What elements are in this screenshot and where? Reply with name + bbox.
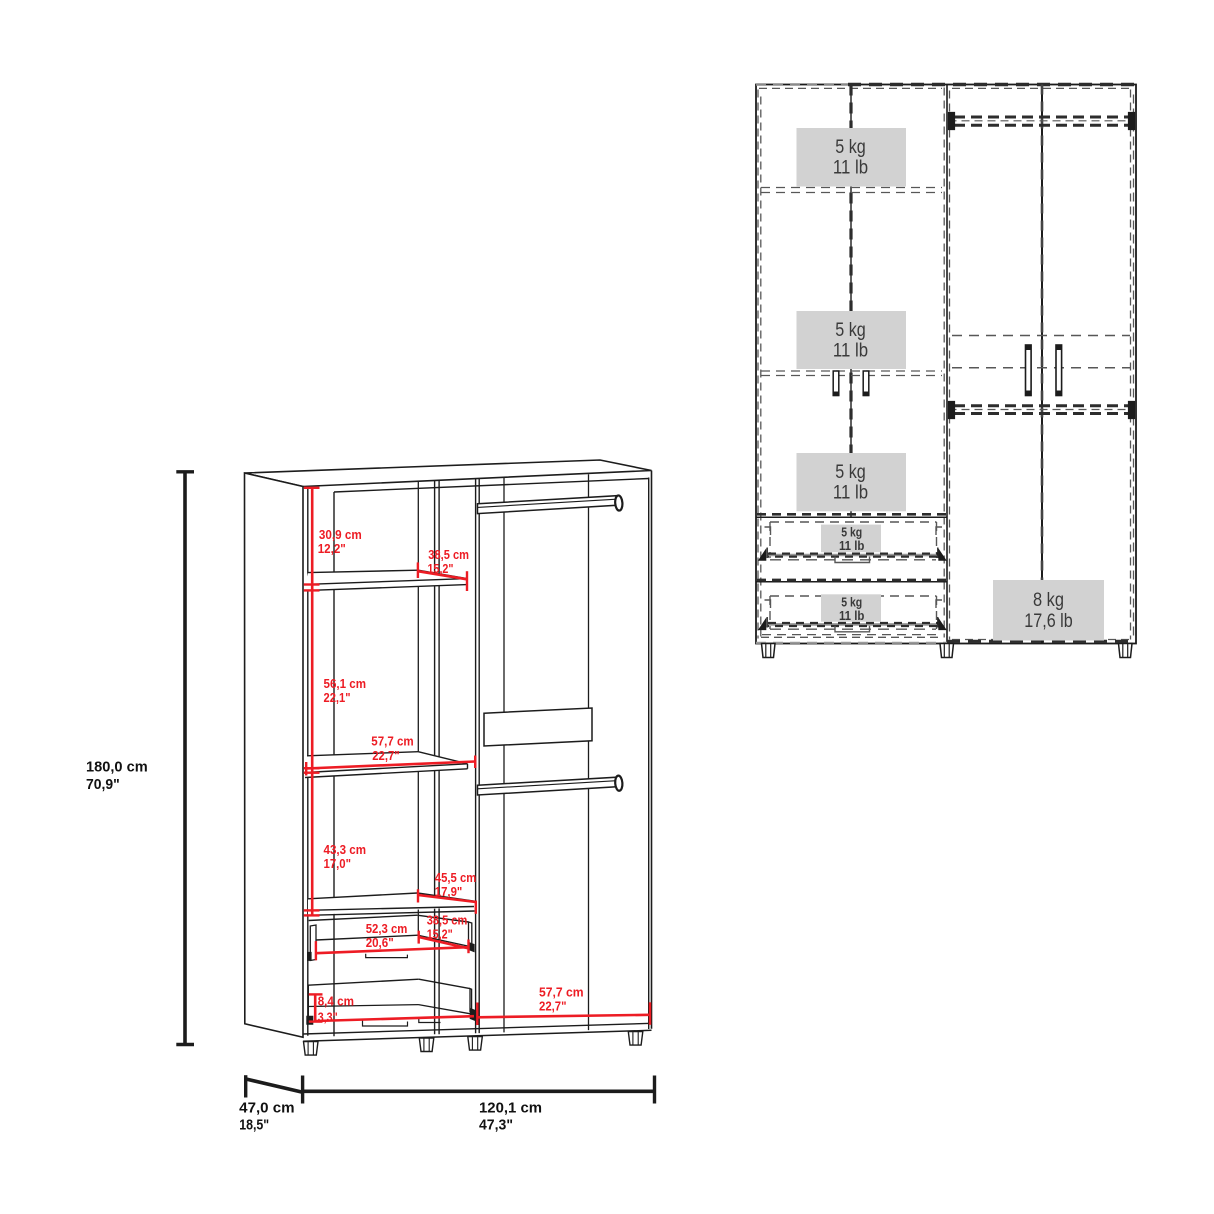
svg-text:12,2": 12,2" [318,541,346,556]
svg-text:22,1": 22,1" [324,690,351,705]
svg-text:20,6": 20,6" [366,935,394,950]
svg-text:5 kg: 5 kg [841,526,862,540]
svg-text:8,4 cm: 8,4 cm [318,994,354,1009]
svg-text:38,5 cm: 38,5 cm [428,547,469,562]
svg-text:22,7": 22,7" [539,999,567,1014]
svg-text:47,0 cm: 47,0 cm [239,1101,294,1117]
svg-text:5 kg: 5 kg [835,320,866,341]
svg-text:70,9": 70,9" [86,777,120,793]
svg-text:3,3": 3,3" [318,1010,338,1025]
svg-text:11 lb: 11 lb [833,340,868,361]
svg-text:57,7 cm: 57,7 cm [539,985,584,1000]
svg-text:38,5 cm: 38,5 cm [427,912,468,927]
svg-text:5 kg: 5 kg [841,595,862,609]
svg-text:45,5 cm: 45,5 cm [435,870,477,885]
svg-text:43,3 cm: 43,3 cm [324,842,367,857]
svg-text:22,7": 22,7" [372,748,400,763]
svg-text:5 kg: 5 kg [835,137,866,158]
svg-text:56,1 cm: 56,1 cm [324,676,367,691]
svg-text:30,9 cm: 30,9 cm [319,527,362,542]
svg-text:180,0 cm: 180,0 cm [86,760,148,776]
svg-text:57,7 cm: 57,7 cm [371,734,413,749]
svg-text:11 lb: 11 lb [839,539,865,553]
svg-text:8 kg: 8 kg [1033,590,1064,611]
svg-text:11 lb: 11 lb [833,158,868,179]
svg-text:11 lb: 11 lb [833,482,868,503]
svg-text:17,9": 17,9" [435,884,463,899]
svg-text:11 lb: 11 lb [839,609,865,623]
svg-text:52,3 cm: 52,3 cm [366,921,408,936]
svg-text:17,6 lb: 17,6 lb [1024,611,1073,632]
svg-text:15,2": 15,2" [428,561,454,576]
svg-text:18,5": 18,5" [239,1118,269,1134]
svg-text:5 kg: 5 kg [835,462,866,483]
svg-text:120,1 cm: 120,1 cm [479,1101,542,1117]
svg-text:47,3": 47,3" [479,1118,513,1134]
svg-text:17,0": 17,0" [324,856,352,871]
svg-text:15,2": 15,2" [427,926,453,941]
